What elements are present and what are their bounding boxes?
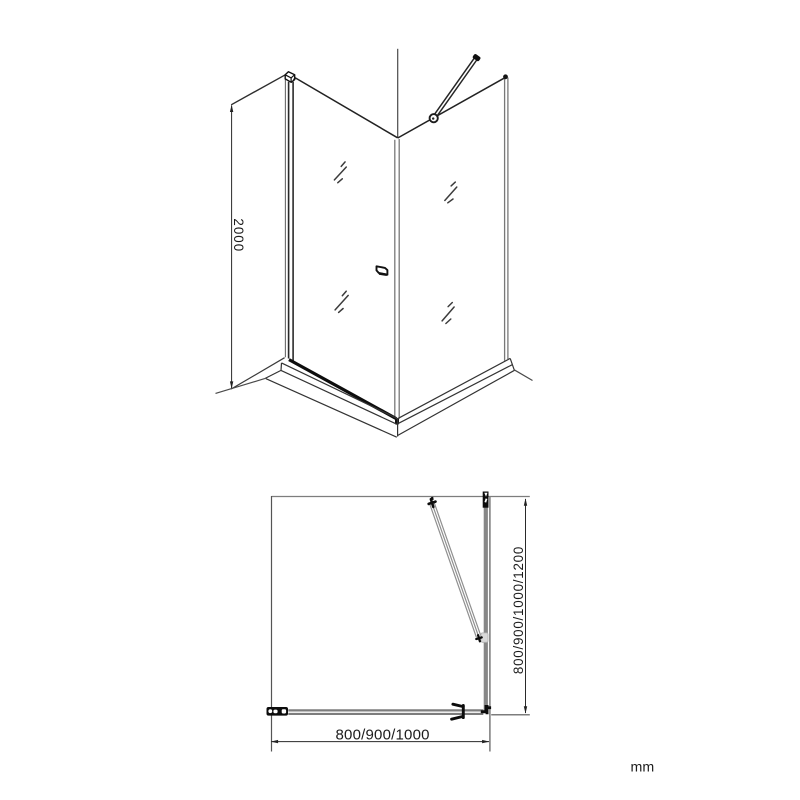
svg-text:mm: mm <box>631 760 655 776</box>
svg-text:800/900/1000: 800/900/1000 <box>336 726 430 743</box>
svg-text:2000: 2000 <box>231 218 246 252</box>
svg-text:800/900/1000/1200: 800/900/1000/1200 <box>511 546 526 674</box>
